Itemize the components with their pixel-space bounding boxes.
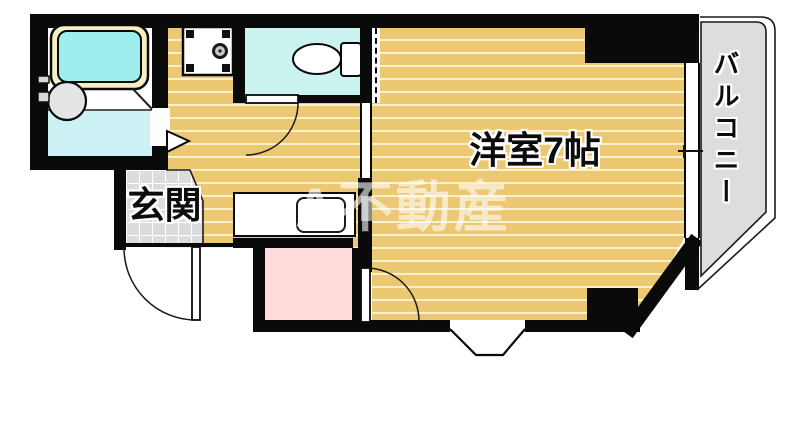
toilet-door-leaf (246, 95, 298, 103)
floor-plan: A不動産 玄関 洋室7帖 バルコニー (0, 0, 812, 424)
balcony-label: バルコニー (712, 50, 738, 260)
toilet-tank (341, 43, 361, 76)
toilet (293, 44, 341, 74)
watermark: A不動産 (295, 180, 512, 235)
pan-corner (222, 64, 230, 72)
bay-window (450, 329, 525, 355)
wall-diagonal (627, 238, 697, 334)
genkan-label: 玄関 (126, 187, 203, 224)
toilet-door-arc (246, 103, 298, 155)
bath-door-arrow (167, 131, 189, 152)
room-door-leaf (361, 268, 370, 322)
pan-corner (222, 30, 230, 38)
pan-corner (186, 64, 194, 72)
bathtub (58, 31, 141, 82)
western-room-label: 洋室7帖 (455, 132, 615, 169)
pan-drain-center (218, 49, 221, 52)
room-door-arc (366, 268, 419, 321)
entrance-door-leaf (192, 247, 200, 320)
bathroom-sink (48, 82, 86, 120)
bath-corner-bevel (133, 89, 152, 109)
pan-corner (186, 30, 194, 38)
bath-faucet (38, 92, 49, 102)
bath-faucet (38, 76, 49, 83)
entrance-door-arc (124, 248, 196, 320)
